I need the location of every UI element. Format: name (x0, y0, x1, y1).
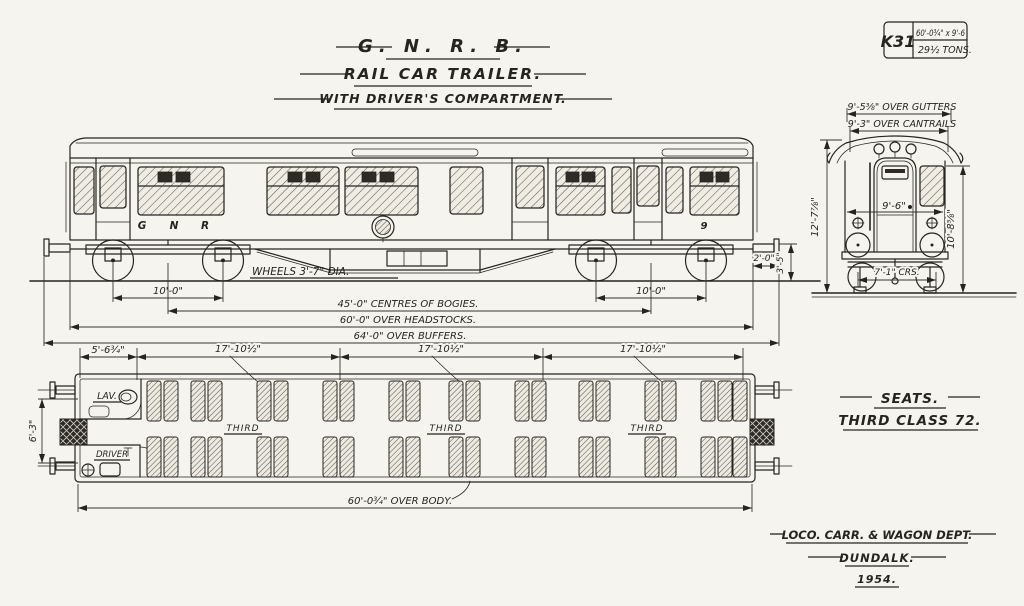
company-crest (372, 216, 394, 242)
window (450, 167, 483, 214)
seats-heading: SEATS. (881, 391, 939, 407)
roof-profile (70, 138, 753, 158)
gangway-right (750, 419, 774, 445)
dim-over-gutters: 9'-5⅜" OVER GUTTERS (848, 102, 957, 113)
body-letter-n: N (170, 220, 179, 232)
footer-block: LOCO. CARR. & WAGON DEPT. DUNDALK. 1954. (770, 528, 996, 587)
dim-inside-width: 6'-3" (28, 420, 39, 443)
window-vented (690, 167, 739, 215)
side-dimensions: WHEELS 3'-7" DIA. 10'-0" 10'-0" 45'-0" C… (44, 244, 797, 346)
footer-year: 1954. (857, 573, 897, 586)
dim-bay-2: 17'-10½" (418, 343, 464, 355)
reference-weight: 29½ TONS. (918, 45, 972, 56)
drawing-canvas: G. N. R. B. RAIL CAR TRAILER. WITH DRIVE… (0, 0, 1024, 606)
body-letter-g: G (138, 220, 147, 232)
seats-note: SEATS. THIRD CLASS 72. (838, 391, 981, 430)
dim-buffer-projection: 2'-0" (753, 254, 774, 264)
buffer-left (44, 239, 70, 256)
plan-dimensions-top: 5'-6¾" 17'-10½" 17'-10½" 17'-10½" (80, 343, 743, 382)
class-label-3: THIRD (630, 424, 663, 434)
roof-vent-strip (662, 149, 748, 156)
class-label-2: THIRD (429, 424, 462, 434)
dim-axle-centres: 7'-1" CRS. (874, 268, 919, 278)
class-label-1: THIRD (226, 424, 259, 434)
end-view: 9'-5⅜" OVER GUTTERS 9'-3" OVER CANTRAILS… (810, 102, 1016, 297)
drawing-title-railway: G. N. R. B. (358, 36, 528, 57)
window (666, 167, 683, 213)
roof-vent-strip (352, 149, 478, 156)
battery-box (387, 251, 447, 266)
gangway-left (60, 419, 87, 445)
reference-box: K31 60'-0¾" x 9'-6 29½ TONS. (881, 22, 972, 58)
dim-over-buffers: 64'-0" OVER BUFFERS. (354, 331, 467, 342)
window-vented (267, 167, 339, 215)
dim-over-cantrails: 9'-3" OVER CANTRAILS (848, 119, 956, 130)
body-letter-r: R (201, 220, 209, 232)
seats-detail: THIRD CLASS 72. (838, 413, 981, 429)
footer-place: DUNDALK. (839, 551, 915, 565)
buffer-shank-left (852, 217, 864, 229)
dim-bay-1: 17'-10½" (215, 343, 261, 355)
plan-view: 5'-6¾" 17'-10½" 17'-10½" 17'-10½" (28, 343, 792, 512)
toilet (119, 390, 137, 404)
door (96, 158, 130, 240)
lavatory-compartment: LAV. (80, 379, 141, 419)
dim-bay-3: 17'-10½" (620, 343, 666, 355)
dim-end-bay: 5'-6¾" (91, 345, 124, 356)
drawing-title-subject: RAIL CAR TRAILER. (344, 65, 543, 83)
end-window (920, 166, 944, 206)
window-vented (345, 167, 418, 215)
door (512, 158, 548, 240)
dim-body-width: 9'-6" (882, 201, 906, 212)
door (634, 158, 662, 240)
lavatory-label: LAV. (97, 391, 117, 402)
dim-buffer-height: 3'-5" (776, 252, 786, 273)
dim-wheels: WHEELS 3'-7" DIA. (252, 266, 350, 278)
dim-bogie-centres: 45'-0" CENTRES OF BOGIES. (338, 299, 479, 310)
footer-dept: LOCO. CARR. & WAGON DEPT. (782, 528, 973, 542)
reference-code: K31 (881, 32, 916, 51)
reference-size: 60'-0¾" x 9'-6 (916, 29, 965, 39)
window-vented (556, 167, 605, 215)
dim-over-body: 60'-0¾" OVER BODY. (348, 496, 453, 507)
window-vented (138, 167, 224, 215)
washbasin (89, 406, 109, 417)
dim-over-headstocks: 60'-0" OVER HEADSTOCKS. (340, 315, 476, 326)
title-block: G. N. R. B. RAIL CAR TRAILER. WITH DRIVE… (274, 36, 612, 109)
dim-side-height: 10'-8⅝" (946, 209, 957, 249)
window (74, 167, 94, 214)
window (612, 167, 631, 213)
roof-lamps (874, 142, 916, 158)
driver-label: DRIVER (96, 450, 128, 460)
driver-seat (100, 463, 120, 476)
drawing-title-variant: WITH DRIVER'S COMPARTMENT. (319, 91, 567, 106)
engineering-drawing-sheet: G. N. R. B. RAIL CAR TRAILER. WITH DRIVE… (0, 0, 1024, 606)
dim-roof-height: 12'-7⅞" (810, 197, 821, 237)
buffer-shank-right (926, 217, 938, 229)
car-number: 9 (701, 221, 708, 232)
side-elevation: G N R 9 (30, 138, 820, 346)
